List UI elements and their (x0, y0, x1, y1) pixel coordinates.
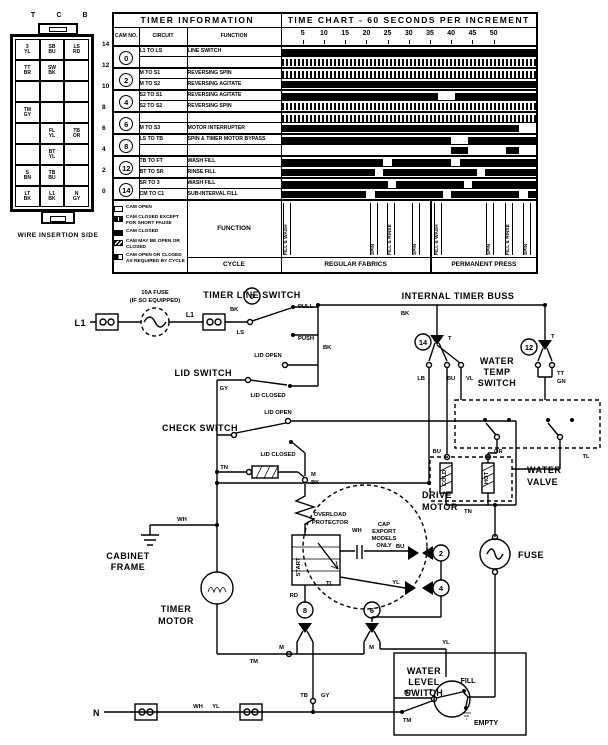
cam-circle-number: 2 (439, 549, 443, 558)
schematic-label: BK (323, 345, 332, 351)
cam-bar-segment (472, 181, 536, 188)
function-cell: REVERSING AGITATE (187, 90, 281, 101)
schematic-label: START (296, 557, 302, 576)
cam-number: 4 (119, 95, 133, 109)
connector-pin-cell: FL YL (40, 123, 65, 144)
schematic-label: BK (401, 311, 410, 317)
pin-wire-code: N GY (73, 192, 80, 202)
tick-mark (430, 40, 431, 44)
cam-bar-segment (282, 159, 384, 166)
cycle-name: REGULAR FABRICS (282, 258, 432, 272)
schematic-label: 10A FUSE (141, 290, 169, 296)
connector-pin-cell (64, 60, 89, 81)
connector-pin-cell: S BN (15, 165, 40, 186)
cam-bar-segment (282, 181, 388, 188)
pin-wire-code: SW BK (48, 66, 56, 76)
legend-item: CAM OPEN OR CLOSED AS REQUIRED BY CYCLE (114, 253, 187, 264)
schematic-label: TN (220, 465, 228, 471)
schematic-label: EXPORT (372, 529, 396, 535)
bar-cell (281, 68, 537, 79)
schematic-label: WH (193, 704, 203, 710)
schematic-label: SWITCH (478, 378, 517, 388)
timer-row: M TO S3MOTOR INTERRUPTER (113, 123, 537, 134)
schematic-label: WH (177, 517, 187, 523)
circuit-cell: L1 TO LS (139, 46, 187, 57)
connector-pin-cell: N GY (64, 186, 89, 207)
timer-motor-icon (201, 572, 233, 604)
schematic-label: BK (230, 307, 239, 313)
timer-row: 2M TO S1REVERSING SPIN (113, 68, 537, 79)
legend-text: CAM MAY BE OPEN OR CLOSED (126, 239, 187, 250)
circuit-cell: CM TO C1 (139, 189, 187, 200)
bar-cell (281, 167, 537, 178)
phase-label: FILL & RINSE (505, 203, 513, 255)
schematic-label: FRAME (111, 562, 146, 572)
schematic-label: GY (220, 386, 229, 392)
time-chart-title: TIME CHART - 60 SECONDS PER INCREMENT (281, 13, 537, 27)
wire-connector-diagram: TCB 3 YLSB BULS RDTT BRSW BKTM GYFL YLTB… (10, 12, 106, 239)
timer-row (113, 145, 537, 156)
connector-pin-cell (64, 144, 89, 165)
wiring-schematic: TIMER LINE SWITCH10A FUSE(IF SO EQUIPPED… (0, 285, 608, 745)
function-cell (187, 112, 281, 123)
cycle-row-label: CYCLE (187, 257, 281, 273)
water-temp-switch-box (455, 400, 600, 448)
connector-pin-cell: L1 BK (40, 186, 65, 207)
cam-circle-number: 0 (250, 292, 254, 301)
cycle-section: FILL & WASHSPINFILL & RINSESPIN (432, 201, 536, 257)
pin-wire-code: FL YL (49, 129, 55, 139)
timer-row: S2 TO S2REVERSING SPIN (113, 101, 537, 112)
cam-number: 2 (119, 73, 133, 87)
schematic-labels: TIMER LINE SWITCH10A FUSE(IF SO EQUIPPED… (74, 290, 590, 727)
pin-wire-code: L1 BK (48, 192, 55, 202)
connector-pin-cell: LT BK (15, 186, 40, 207)
connector-pin-cell (15, 123, 40, 144)
legend-item: CAM CLOSED EXCEPT FOR SHORT PAUSE (114, 215, 187, 226)
function-cell: SPIN & TIMER MOTOR BYPASS (187, 134, 281, 145)
cam-number: 12 (119, 161, 133, 175)
schematic-label: LID CLOSED (260, 452, 295, 458)
bar-cell (281, 46, 537, 57)
tick-mark (494, 40, 495, 44)
connector-pin-cell: 3 YL (15, 39, 40, 60)
schematic-label: FUSE (518, 550, 544, 560)
cam-number-cell: 6 (113, 112, 139, 134)
schematic-label: LID OPEN (264, 410, 291, 416)
cam-bar-segment (282, 49, 537, 56)
timer-row: 8LS TO TBSPIN & TIMER MOTOR BYPASS (113, 134, 537, 145)
phase-label: SPIN (486, 203, 494, 255)
cam-bar-segment (506, 147, 519, 154)
bar-cell (281, 156, 537, 167)
timer-row (113, 57, 537, 68)
schematic-label: OVERLOAD (314, 512, 347, 518)
schematic-label: BT (404, 690, 412, 696)
schematic-label: WH (352, 528, 362, 534)
legend-swatch-open (114, 206, 123, 212)
schematic-label: TT (557, 371, 565, 377)
schematic-label: BU (447, 376, 455, 382)
function-cell: REVERSING SPIN (187, 101, 281, 112)
bar-cell (281, 90, 537, 101)
legend-item: CAM MAY BE OPEN OR CLOSED (114, 239, 187, 250)
timer-row: 6 (113, 112, 537, 123)
cam-circle-number: 4 (439, 584, 444, 593)
connector-pin-cell (15, 81, 40, 102)
schematic-label: MOTOR (158, 616, 194, 626)
schematic-label: PULL (298, 304, 314, 310)
legend-text: CAM OPEN (126, 205, 152, 211)
schematic-label: CAP (378, 522, 390, 528)
schematic-label: YL (442, 640, 450, 646)
schematic-label: VALVE (527, 477, 558, 487)
cam-bar-segment (282, 169, 375, 176)
legend-text: CAM OPEN OR CLOSED AS REQUIRED BY CYCLE (126, 253, 187, 264)
tick-number: 50 (490, 30, 498, 37)
schematic-label: MOTOR (422, 502, 458, 512)
schematic-label: LS (237, 330, 245, 336)
schematic-label: CHECK SWITCH (162, 423, 238, 433)
legend-text: CAM CLOSED (126, 229, 158, 235)
schematic-label: M (369, 645, 374, 651)
schematic-label: M (311, 472, 316, 478)
schematic-label: VL (466, 376, 474, 382)
tick-number: 30 (405, 30, 413, 37)
col-header-circuit: CIRCUIT (139, 27, 187, 46)
schematic-label: TB (300, 693, 308, 699)
cam-number-cell: 14 (113, 178, 139, 200)
schematic-label: T (448, 336, 452, 342)
bar-cell (281, 79, 537, 90)
connector-shell: 3 YLSB BULS RDTT BRSW BKTM GYFL YLTB ORB… (10, 34, 94, 212)
tick-number: 25 (384, 30, 392, 37)
circuit-cell (139, 112, 187, 123)
pin-wire-code: BT YL (49, 150, 56, 160)
tick-mark (388, 40, 389, 44)
circuit-cell: M TO S3 (139, 123, 187, 134)
schematic-label: LID SWITCH (175, 368, 233, 378)
connector-bottom-tab (41, 211, 75, 224)
schematic-label: DRIVE (422, 490, 452, 500)
cam-bar-segment (396, 181, 464, 188)
schematic-label: GY (321, 693, 330, 699)
schematic-label: L1 (74, 318, 86, 328)
timer-row: 14SR TO 3WASH FILL (113, 178, 537, 189)
time-axis-ticks: 5101520253035404550 (282, 28, 537, 45)
circuit-cell (139, 57, 187, 68)
bar-cell (281, 57, 537, 68)
timer-information-title: TIMER INFORMATION (113, 13, 281, 27)
cam-number: 14 (119, 183, 133, 197)
tick-number: 5 (301, 30, 305, 37)
schematic-label: INTERNAL TIMER BUSS (402, 291, 515, 301)
cam-bar-segment (455, 93, 536, 100)
schematic-label: HOT (484, 471, 490, 484)
cam-bar-segment (383, 169, 476, 176)
schematic-label: BU (396, 544, 404, 550)
schematic-label: M (279, 645, 284, 651)
legend-item: CAM OPEN (114, 205, 187, 212)
schematic-label: EMPTY (474, 720, 498, 727)
connector-pin-cell (15, 144, 40, 165)
phase-label: FILL & WASH (283, 203, 291, 255)
schematic-label: N (93, 708, 100, 718)
connector-pin-cell: BT YL (40, 144, 65, 165)
cam-rows: 0L1 TO LSLINE SWITCH2M TO S1REVERSING SP… (113, 46, 537, 200)
schematic-label: RD (290, 593, 298, 599)
cam-circle-number: 6 (370, 606, 374, 615)
connector-pin-cell (64, 81, 89, 102)
connector-pin-cell: TT BR (15, 60, 40, 81)
pin-wire-code: LT BK (24, 192, 31, 202)
connector-column-label: C (46, 12, 72, 22)
col-header-cam: CAM NO. (113, 27, 139, 46)
col-header-function: FUNCTION (187, 27, 281, 46)
timer-row: 12TB TO FTWASH FILL (113, 156, 537, 167)
pin-wire-code: TT BR (24, 66, 31, 76)
tick-mark (366, 40, 367, 44)
circuit-cell (139, 145, 187, 156)
phase-label: SPIN (412, 203, 420, 255)
bar-cell (281, 178, 537, 189)
schematic-label: COLD (442, 470, 448, 486)
cam-number-cell: 12 (113, 156, 139, 178)
tick-number: 20 (362, 30, 370, 37)
schematic-label: TL (582, 454, 590, 460)
legend-text: CAM CLOSED EXCEPT FOR SHORT PAUSE (126, 215, 187, 226)
cycle-phase-strip: FILL & WASHSPINFILL & RINSESPINFILL & WA… (282, 201, 537, 257)
schematic-label: BK (311, 480, 320, 486)
connector-pin-cell: SW BK (40, 60, 65, 81)
cam-bar-segment (392, 159, 451, 166)
cam-bar-segment (282, 103, 537, 110)
tick-mark (472, 40, 473, 44)
circuit-cell: LS TO TB (139, 134, 187, 145)
tick-number: 10 (320, 30, 328, 37)
circuit-cell: BT TO SR (139, 167, 187, 178)
phase-label: FILL & WASH (434, 203, 442, 255)
timer-row: CM TO C1SUB-INTERVAL FILL (113, 189, 537, 200)
cycle-name: PERMANENT PRESS (432, 258, 536, 272)
pin-wire-code: S BN (24, 171, 31, 181)
cam-bar-segment (282, 81, 537, 88)
bar-cell (281, 189, 537, 200)
timer-row: M TO S2REVERSING AGITATE (113, 79, 537, 90)
tick-mark (345, 40, 346, 44)
cam-circle-number: 8 (303, 606, 307, 615)
connector-pin-cell (64, 165, 89, 186)
cycle-names: REGULAR FABRICSPERMANENT PRESS (282, 258, 537, 272)
schematic-label: LB (417, 376, 425, 382)
connector-column-labels: TCB (10, 12, 106, 22)
connector-pin-cell (40, 81, 65, 102)
circuit-cell: TB TO FT (139, 156, 187, 167)
schematic-label: OR (494, 449, 504, 455)
cam-legend: CAM OPENCAM CLOSED EXCEPT FOR SHORT PAUS… (113, 200, 187, 273)
cam-bar-segment (485, 169, 536, 176)
schematic-label: BU (433, 449, 441, 455)
cam-bar-segment (451, 147, 468, 154)
tick-number: 15 (341, 30, 349, 37)
schematic-label: WATER (480, 356, 514, 366)
legend-swatch-mixed (114, 240, 123, 246)
tick-mark (324, 40, 325, 44)
tick-mark (451, 40, 452, 44)
bar-cell (281, 145, 537, 156)
connector-pin-cell: TM GY (15, 102, 40, 123)
legend-swatch-half (114, 254, 123, 260)
timer-row: 4S2 TO S1REVERSING AGITATE (113, 90, 537, 101)
cam-number-cell: 4 (113, 90, 139, 112)
cam-number-cell: 8 (113, 134, 139, 156)
cam-circle-number: 12 (525, 343, 533, 352)
cam-bar-segment (282, 71, 537, 78)
schematic-label: PROTECTOR (312, 520, 349, 526)
function-cell: REVERSING SPIN (187, 68, 281, 79)
pin-wire-code: LS RD (73, 45, 80, 55)
function-cell (187, 57, 281, 68)
function-cell: RINSE FILL (187, 167, 281, 178)
tick-mark (409, 40, 410, 44)
cam-bar-segment (375, 191, 443, 198)
connector-pin-grid: 3 YLSB BULS RDTT BRSW BKTM GYFL YLTB ORB… (15, 39, 89, 207)
pin-wire-code: TB BU (48, 171, 55, 181)
connector-pin-cell (40, 102, 65, 123)
schematic-label: TIMER (161, 604, 192, 614)
schematic-label: ONLY (376, 543, 392, 549)
schematic-label: LEVEL (408, 677, 440, 687)
cam-number: 8 (119, 139, 133, 153)
function-cell: SUB-INTERVAL FILL (187, 189, 281, 200)
circuit-cell: SR TO 3 (139, 178, 187, 189)
timer-chart-table: TIMER INFORMATION TIME CHART - 60 SECOND… (112, 12, 538, 274)
bar-cell (281, 123, 537, 134)
legend-item: CAM CLOSED (114, 229, 187, 236)
function-cell: LINE SWITCH (187, 46, 281, 57)
phase-label: SPIN (370, 203, 378, 255)
schematic-label: TL (326, 581, 334, 587)
bar-cell (281, 112, 537, 123)
bar-cell (281, 101, 537, 112)
schematic-label: WATER (407, 666, 441, 676)
schematic-label: TEMP (483, 367, 510, 377)
pin-wire-code: TB OR (73, 129, 81, 139)
schematic-label: T (428, 689, 432, 695)
connector-pin-cell: TB BU (40, 165, 65, 186)
bar-cell (281, 134, 537, 145)
schematic-label: (IF SO EQUIPPED) (130, 298, 181, 304)
timer-row: 0L1 TO LSLINE SWITCH (113, 46, 537, 57)
pin-wire-code: 3 YL (24, 45, 30, 55)
function-cell (187, 145, 281, 156)
schematic-label: L1 (186, 312, 194, 319)
cam-number-cell: 2 (113, 68, 139, 90)
schematic-label: MODELS (372, 536, 397, 542)
page: { "connector": { "caption": "WIRE INSERT… (0, 0, 608, 745)
schematic-label: LID CLOSED (250, 393, 285, 399)
tick-number: 40 (447, 30, 455, 37)
schematic-label: LID OPEN (254, 353, 281, 359)
legend-swatch-closed (114, 230, 123, 236)
pin-wire-code: SB BU (48, 45, 55, 55)
connector-column-label: T (20, 12, 46, 22)
cam-bar-segment (468, 137, 536, 144)
cam-bar-segment (282, 137, 452, 144)
connector-caption: WIRE INSERTION SIDE (10, 232, 106, 239)
tick-number: 45 (468, 30, 476, 37)
legend-swatch-slit (114, 216, 123, 222)
schematic-label: YL (212, 704, 220, 710)
schematic-label: PUSH (298, 336, 314, 342)
schematic-label: FILL (461, 678, 476, 685)
pin-wire-code: TM GY (24, 108, 31, 118)
cam-bar-segment (282, 115, 537, 122)
connector-pin-cell: TB OR (64, 123, 89, 144)
tick-number: 35 (426, 30, 434, 37)
cam-bar-segment (451, 191, 519, 198)
schematic-label: TN (464, 509, 472, 515)
phase-label: SPIN (523, 203, 531, 255)
cam-number: 0 (119, 51, 133, 65)
cam-bar-segment (282, 93, 439, 100)
connector-pin-cell (64, 102, 89, 123)
function-cell: REVERSING AGITATE (187, 79, 281, 90)
cycle-section: FILL & WASHSPINFILL & RINSESPIN (282, 201, 432, 257)
schematic-label: WATER (527, 465, 561, 475)
cam-circle-number: 14 (419, 338, 428, 347)
schematic-label: CABINET (106, 551, 150, 561)
schematic-label: T (551, 334, 555, 340)
phase-label: FILL & RINSE (387, 203, 395, 255)
cam-bar-segment (528, 191, 536, 198)
schematic-label: GN (557, 379, 566, 385)
timer-row: BT TO SRRINSE FILL (113, 167, 537, 178)
function-row-label: FUNCTION (187, 200, 281, 258)
function-cell: WASH FILL (187, 178, 281, 189)
cam-bar-segment (282, 125, 520, 132)
schematic-label: YL (392, 580, 400, 586)
connector-pin-cell: LS RD (64, 39, 89, 60)
schematic-geometry (90, 303, 600, 735)
cam-number: 6 (119, 117, 133, 131)
circuit-cell: S2 TO S2 (139, 101, 187, 112)
cam-bar-segment (282, 59, 537, 66)
connector-pin-cell: SB BU (40, 39, 65, 60)
circuit-cell: S2 TO S1 (139, 90, 187, 101)
circuit-cell: M TO S2 (139, 79, 187, 90)
function-cell: WASH FILL (187, 156, 281, 167)
cam-bar-segment (282, 191, 367, 198)
connector-column-label: B (72, 12, 98, 22)
schematic-label: TM (403, 718, 412, 724)
tick-mark (303, 40, 304, 44)
function-cell: MOTOR INTERRUPTER (187, 123, 281, 134)
cam-bar-segment (460, 159, 536, 166)
cam-number-cell: 0 (113, 46, 139, 68)
circuit-cell: M TO S1 (139, 68, 187, 79)
schematic-label: TM (250, 659, 259, 665)
